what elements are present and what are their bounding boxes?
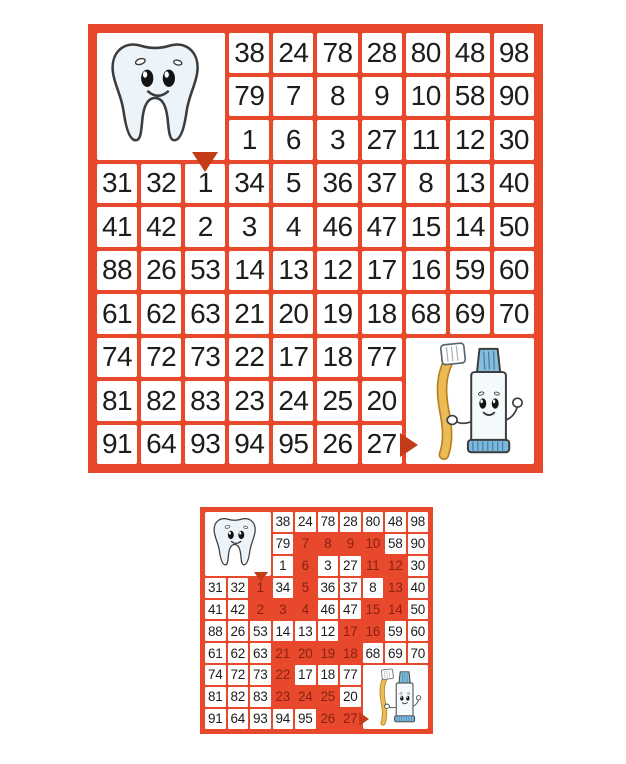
maze-cell: 32	[228, 578, 249, 598]
maze-cell: 24	[273, 33, 313, 73]
maze-cell: 2	[185, 207, 225, 247]
maze-cell: 27	[362, 425, 402, 465]
maze-cell: 94	[273, 709, 294, 729]
maze-cell-solution: 2	[250, 600, 271, 620]
maze-cell-solution: 15	[363, 600, 384, 620]
maze-cell: 27	[340, 556, 361, 576]
maze-cell: 3	[317, 120, 357, 160]
maze-cell: 41	[97, 207, 137, 247]
toothpaste-body	[471, 372, 506, 443]
maze-cell-solution: 5	[295, 578, 316, 598]
maze-cell: 95	[295, 709, 316, 729]
maze-cell: 6	[273, 120, 313, 160]
worksheet-page: 3824782880489879789105890163271112303132…	[0, 0, 626, 764]
maze-cell: 94	[229, 425, 269, 465]
tooth-character-icon	[209, 515, 266, 572]
maze-cell: 1	[273, 556, 294, 576]
maze-cell: 12	[318, 621, 339, 641]
maze-cell: 80	[406, 33, 446, 73]
maze-cell: 8	[317, 77, 357, 117]
maze-cell: 17	[295, 665, 316, 685]
maze-cell: 72	[141, 338, 181, 378]
maze-cell: 64	[228, 709, 249, 729]
maze-cell-solution: 27	[340, 709, 361, 729]
maze-cell: 26	[317, 425, 357, 465]
maze-cell-solution: 19	[318, 643, 339, 663]
maze-cell: 62	[228, 643, 249, 663]
right-hand	[513, 398, 522, 407]
maze-cell-solution: 12	[385, 556, 406, 576]
maze-cell-solution: 22	[273, 665, 294, 685]
maze-cell: 42	[228, 600, 249, 620]
maze-cell: 31	[205, 578, 226, 598]
maze-cell-solution: 17	[340, 621, 361, 641]
maze-cell: 74	[97, 338, 137, 378]
tooth-body	[113, 45, 198, 141]
maze-cell: 90	[408, 534, 429, 554]
maze-cell-solution: 8	[318, 534, 339, 554]
maze-cell-solution: 21	[273, 643, 294, 663]
maze-cell: 70	[494, 294, 534, 334]
maze-cell: 53	[185, 251, 225, 291]
maze-cell: 50	[408, 600, 429, 620]
maze-cell-solution: 16	[363, 621, 384, 641]
maze-cell: 30	[408, 556, 429, 576]
maze-cell: 72	[228, 665, 249, 685]
maze-cell: 46	[317, 207, 357, 247]
maze-cell: 17	[362, 251, 402, 291]
maze-cell: 47	[362, 207, 402, 247]
maze-cell: 48	[385, 512, 406, 532]
maze-cell: 77	[340, 665, 361, 685]
maze-cell: 81	[97, 381, 137, 421]
toothpaste-tube	[468, 349, 509, 452]
maze-cell-solution: 11	[363, 556, 384, 576]
maze-cell: 73	[185, 338, 225, 378]
tooth-right-eye	[163, 70, 175, 87]
maze-cell: 70	[408, 643, 429, 663]
maze-cell: 12	[317, 251, 357, 291]
goal-character-area	[406, 338, 534, 465]
maze-cell: 46	[318, 600, 339, 620]
maze-cell: 34	[229, 164, 269, 204]
maze-cell: 68	[406, 294, 446, 334]
maze-cell: 73	[250, 665, 271, 685]
maze-cell: 78	[317, 33, 357, 73]
maze-cell: 69	[385, 643, 406, 663]
toothpaste-tube	[394, 672, 414, 722]
maze-cell: 27	[362, 120, 402, 160]
maze-cell: 58	[385, 534, 406, 554]
toothbrush-icon	[381, 669, 393, 723]
exit-arrow-icon	[400, 433, 418, 457]
tooth-left-eye	[228, 531, 234, 539]
maze-cell: 61	[97, 294, 137, 334]
tooth-right-eye	[239, 531, 245, 539]
maze-cell: 40	[408, 578, 429, 598]
start-character-area	[97, 33, 225, 160]
toothpaste-character-icon	[415, 339, 524, 463]
maze-cell: 58	[450, 77, 490, 117]
tooth-left-eye	[141, 70, 153, 87]
tooth-character-icon	[102, 37, 220, 155]
maze-cell: 81	[205, 687, 226, 707]
maze-cell: 24	[273, 381, 313, 421]
maze-cell: 11	[406, 120, 446, 160]
maze-cell-solution: 23	[273, 687, 294, 707]
maze-cell: 78	[318, 512, 339, 532]
start-arrow-icon	[192, 152, 218, 172]
maze-cell: 93	[185, 425, 225, 465]
maze-cell: 14	[273, 621, 294, 641]
maze-cell: 82	[228, 687, 249, 707]
maze-cell: 28	[362, 33, 402, 73]
maze-cell: 20	[362, 381, 402, 421]
maze-cell: 91	[97, 425, 137, 465]
maze-cell: 68	[363, 643, 384, 663]
maze-cell: 3	[318, 556, 339, 576]
maze-cell: 83	[185, 381, 225, 421]
maze-cell-solution: 9	[340, 534, 361, 554]
maze-cell-solution: 6	[295, 556, 316, 576]
maze-cell: 1	[229, 120, 269, 160]
maze-cell: 30	[494, 120, 534, 160]
maze-cell: 79	[273, 534, 294, 554]
maze-cell: 37	[362, 164, 402, 204]
maze-cell: 26	[228, 621, 249, 641]
maze-cell: 26	[141, 251, 181, 291]
maze-cell: 82	[141, 381, 181, 421]
maze-cell: 18	[318, 665, 339, 685]
maze-cell: 77	[362, 338, 402, 378]
maze-cell: 62	[141, 294, 181, 334]
left-hand	[384, 704, 389, 708]
maze-cell: 14	[450, 207, 490, 247]
maze-cell: 40	[494, 164, 534, 204]
maze-cell-solution: 13	[385, 578, 406, 598]
maze-cell: 36	[318, 578, 339, 598]
maze-cell: 64	[141, 425, 181, 465]
maze-cell: 88	[97, 251, 137, 291]
maze-cell-solution: 25	[318, 687, 339, 707]
start-arrow-icon	[254, 572, 268, 582]
maze-cell: 98	[494, 33, 534, 73]
maze-cell: 10	[406, 77, 446, 117]
maze-cell: 18	[317, 338, 357, 378]
toothbrush-icon	[441, 343, 466, 455]
maze-cell-solution: 20	[295, 643, 316, 663]
toothpaste-character-icon	[369, 667, 422, 727]
maze-cell: 63	[250, 643, 271, 663]
maze-cell: 98	[408, 512, 429, 532]
maze-cell: 88	[205, 621, 226, 641]
maze-cell: 14	[229, 251, 269, 291]
maze-cell: 21	[229, 294, 269, 334]
maze-cell-solution: 10	[363, 534, 384, 554]
tooth-body	[214, 519, 255, 565]
maze-cell: 9	[362, 77, 402, 117]
maze-cell: 47	[340, 600, 361, 620]
maze-cell: 7	[273, 77, 313, 117]
maze-cell: 83	[250, 687, 271, 707]
maze-cell: 74	[205, 665, 226, 685]
maze-cell-solution: 26	[318, 709, 339, 729]
maze-cell: 91	[205, 709, 226, 729]
maze-cell: 19	[317, 294, 357, 334]
maze-cell: 13	[295, 621, 316, 641]
start-character-area	[205, 512, 271, 576]
maze-cell: 59	[450, 251, 490, 291]
maze-cell: 23	[229, 381, 269, 421]
maze-cell: 34	[273, 578, 294, 598]
maze-cell: 13	[273, 251, 313, 291]
maze-cell: 22	[229, 338, 269, 378]
maze-cell: 4	[273, 207, 313, 247]
maze-cell: 69	[450, 294, 490, 334]
maze-cell: 41	[205, 600, 226, 620]
maze-cell: 32	[141, 164, 181, 204]
maze-cell: 53	[250, 621, 271, 641]
maze-cell: 16	[406, 251, 446, 291]
maze-cell: 8	[363, 578, 384, 598]
maze-cell: 60	[494, 251, 534, 291]
goal-character-area	[363, 665, 429, 729]
maze-cell: 18	[362, 294, 402, 334]
exit-arrow-icon	[359, 712, 369, 726]
maze-cell: 59	[385, 621, 406, 641]
maze-cell-solution: 7	[295, 534, 316, 554]
right-hand	[416, 696, 420, 700]
maze-cell: 8	[406, 164, 446, 204]
maze-cell: 24	[295, 512, 316, 532]
maze-cell: 37	[340, 578, 361, 598]
maze-cell-solution: 14	[385, 600, 406, 620]
maze-cell: 79	[229, 77, 269, 117]
maze-cell: 60	[408, 621, 429, 641]
maze-cell: 61	[205, 643, 226, 663]
maze-cell: 38	[273, 512, 294, 532]
maze-cell-solution: 24	[295, 687, 316, 707]
maze-cell: 63	[185, 294, 225, 334]
maze-cell: 12	[450, 120, 490, 160]
maze-cell: 31	[97, 164, 137, 204]
maze-cell: 50	[494, 207, 534, 247]
maze-cell: 17	[273, 338, 313, 378]
maze-cell: 25	[317, 381, 357, 421]
maze-cell: 38	[229, 33, 269, 73]
maze-cell: 90	[494, 77, 534, 117]
maze-cell: 5	[273, 164, 313, 204]
maze-cell: 42	[141, 207, 181, 247]
maze-cell: 3	[229, 207, 269, 247]
maze-cell: 95	[273, 425, 313, 465]
maze-cell: 48	[450, 33, 490, 73]
puzzle-maze: 3824782880489879789105890163271112303132…	[88, 24, 543, 473]
maze-cell-solution: 4	[295, 600, 316, 620]
maze-cell: 15	[406, 207, 446, 247]
maze-cell-solution: 18	[340, 643, 361, 663]
maze-cell: 28	[340, 512, 361, 532]
maze-cell: 36	[317, 164, 357, 204]
maze-cell: 20	[273, 294, 313, 334]
maze-cell-solution: 3	[273, 600, 294, 620]
maze-cell: 93	[250, 709, 271, 729]
toothpaste-body	[396, 683, 413, 717]
maze-cell: 20	[340, 687, 361, 707]
maze-cell: 13	[450, 164, 490, 204]
maze-cell: 80	[363, 512, 384, 532]
solution-maze: 3824782880489879789105890163271112303132…	[200, 507, 433, 734]
left-hand	[448, 415, 458, 424]
